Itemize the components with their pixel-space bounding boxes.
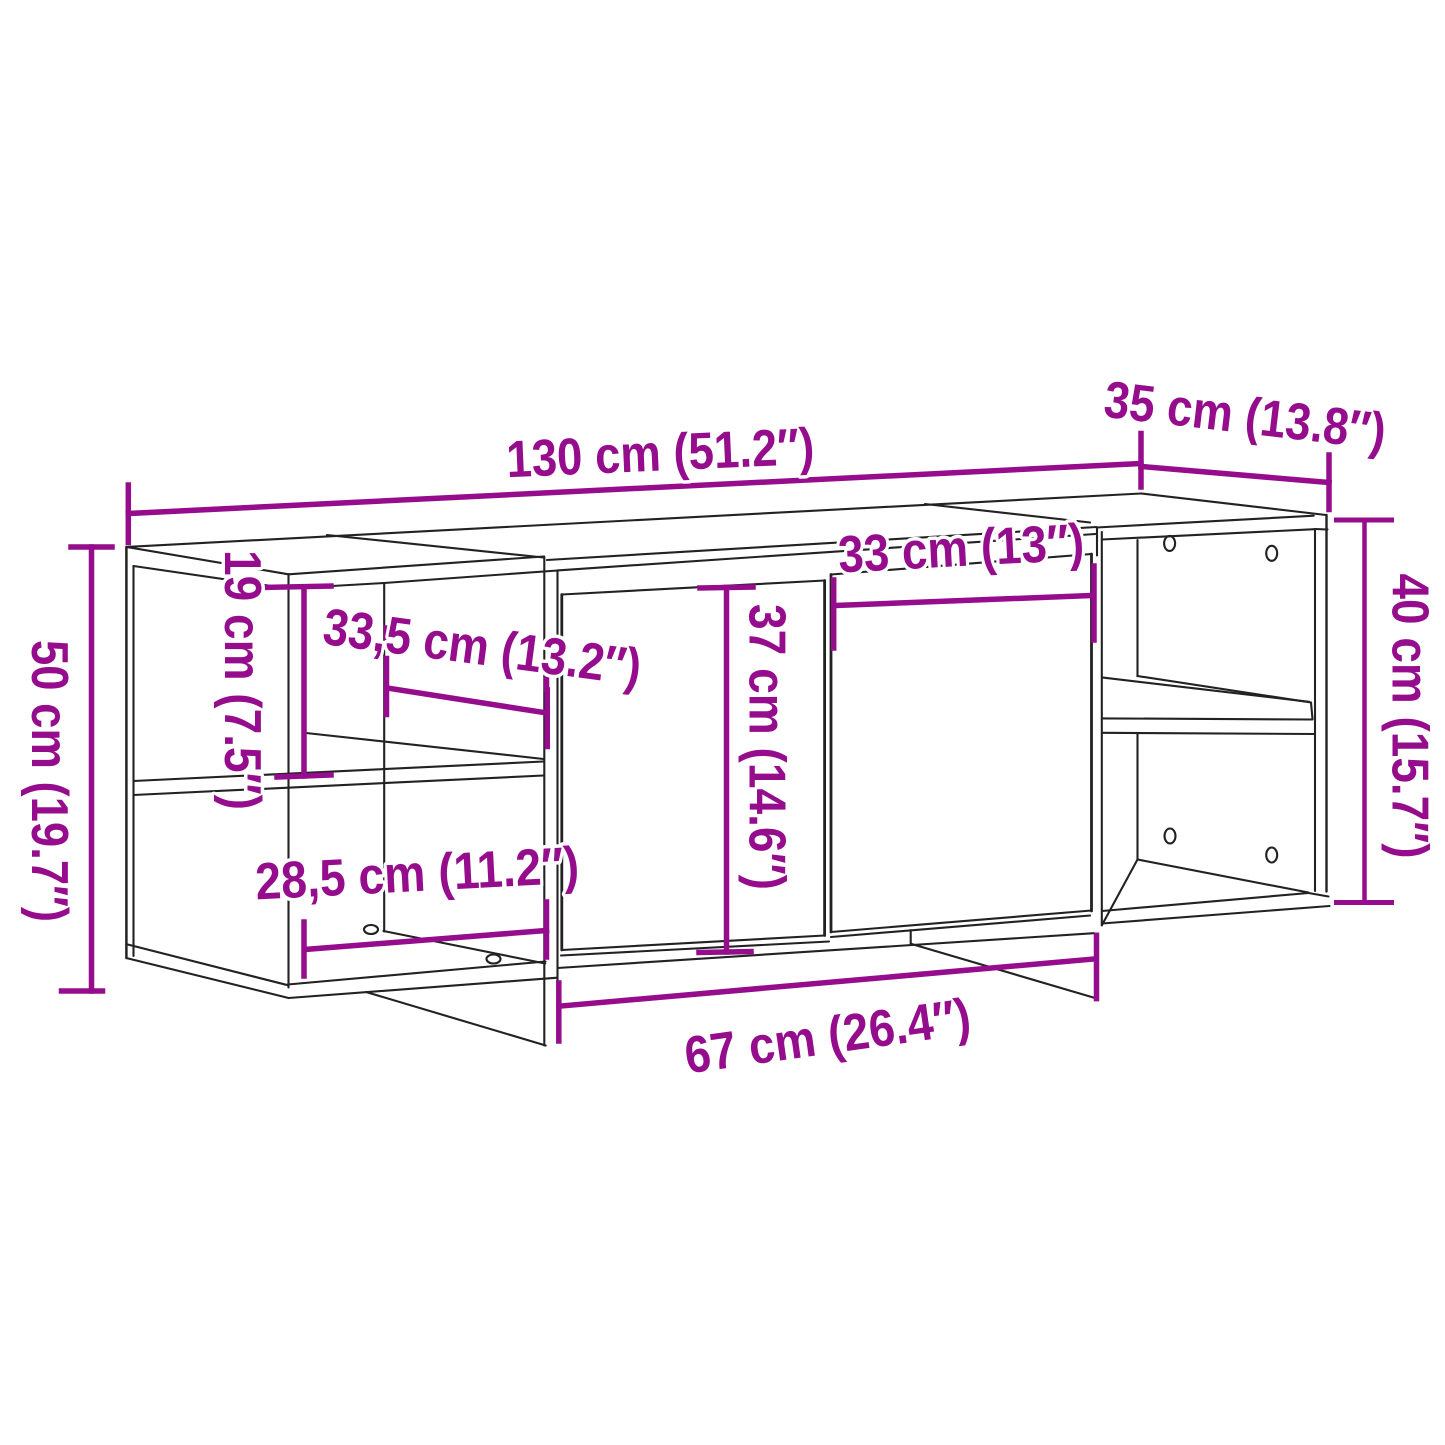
svg-text:40 cm (15.7″): 40 cm (15.7″) — [1381, 574, 1439, 859]
svg-text:50 cm (19.7″): 50 cm (19.7″) — [20, 640, 78, 922]
svg-text:37 cm (14.6″): 37 cm (14.6″) — [738, 604, 796, 890]
svg-text:19 cm (7.5″): 19 cm (7.5″) — [213, 550, 271, 810]
